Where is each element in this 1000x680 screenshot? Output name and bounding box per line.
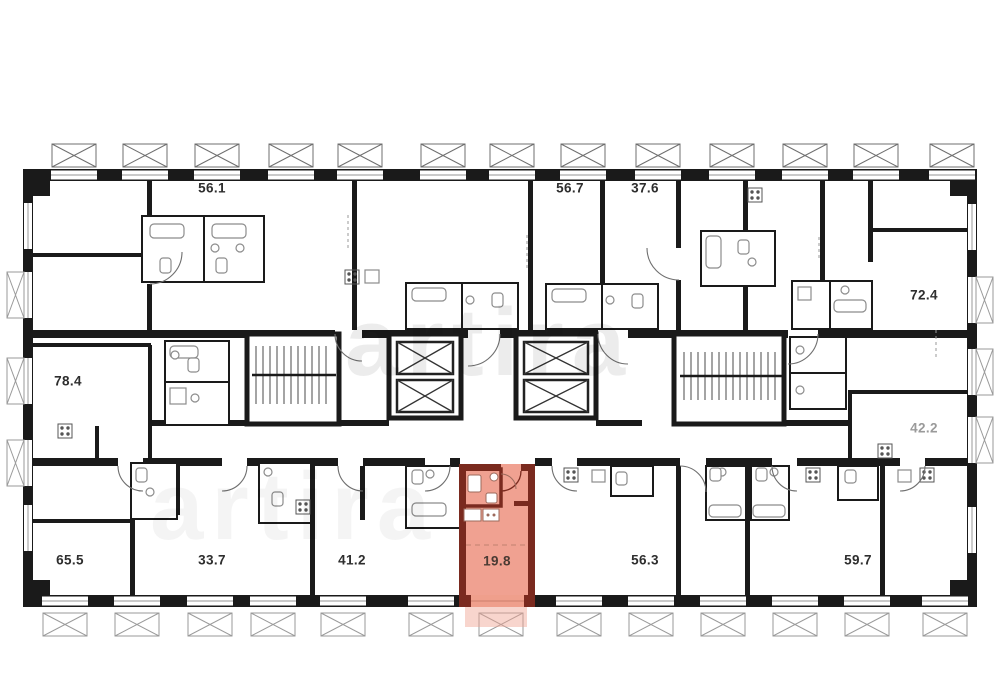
area-label-37-6: 37.6 [631,181,659,196]
floor-plan-drawing [0,0,1000,680]
highlighted-unit-kitchen-stove [483,509,499,521]
highlighted-unit-kitchen-sink [464,509,481,521]
area-label-33-7: 33.7 [198,553,226,568]
area-label-65-5: 65.5 [56,553,84,568]
stairwell-left [247,334,339,424]
area-label-56-3: 56.3 [631,553,659,568]
area-label-41-2: 41.2 [338,553,366,568]
area-label-78-4: 78.4 [54,374,82,389]
area-label-19-8-highlighted: 19.8 [483,554,511,569]
area-label-42-2: 42.2 [910,421,938,436]
area-label-59-7: 59.7 [844,553,872,568]
highlighted-unit[interactable] [459,464,535,627]
area-label-56-1: 56.1 [198,181,226,196]
floor-plan: artira artira 56.1 56.7 37.6 72.4 78.4 4… [0,0,1000,680]
area-label-56-7: 56.7 [556,181,584,196]
area-label-72-4: 72.4 [910,288,938,303]
